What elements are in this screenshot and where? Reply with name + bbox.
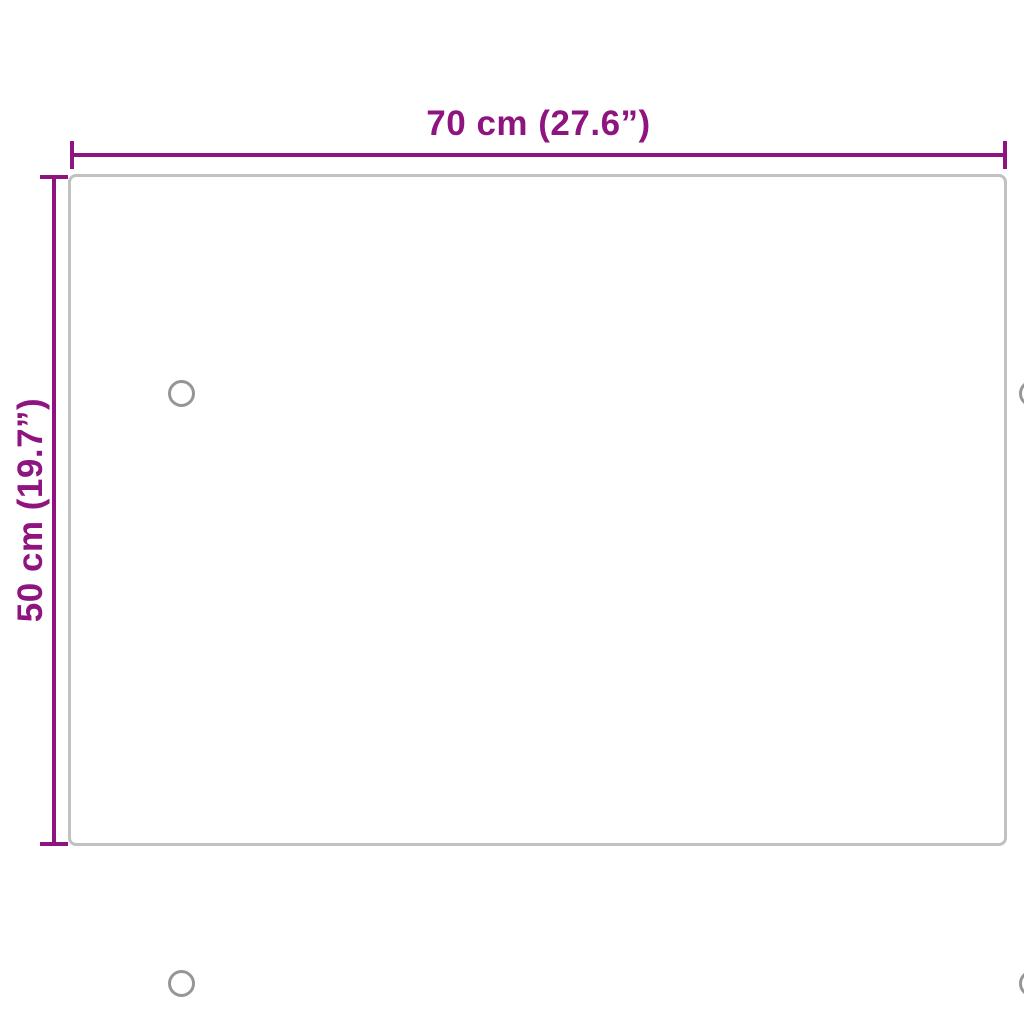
mounting-hole-top-left xyxy=(168,380,195,407)
width-dimension-line xyxy=(70,153,1007,157)
height-dimension-line xyxy=(52,175,56,846)
mounting-hole-bottom-right xyxy=(1019,970,1024,997)
width-dimension-tick-left xyxy=(70,141,74,169)
mounting-hole-bottom-left xyxy=(168,970,195,997)
width-dimension-tick-right xyxy=(1003,141,1007,169)
glass-panel-outline xyxy=(68,174,1007,846)
width-dimension-label: 70 cm (27.6”) xyxy=(70,104,1007,144)
mounting-hole-top-right xyxy=(1019,380,1024,407)
height-dimension-label: 50 cm (19.7”) xyxy=(11,174,51,846)
dimension-diagram: 70 cm (27.6”) 50 cm (19.7”) xyxy=(0,0,1024,1024)
